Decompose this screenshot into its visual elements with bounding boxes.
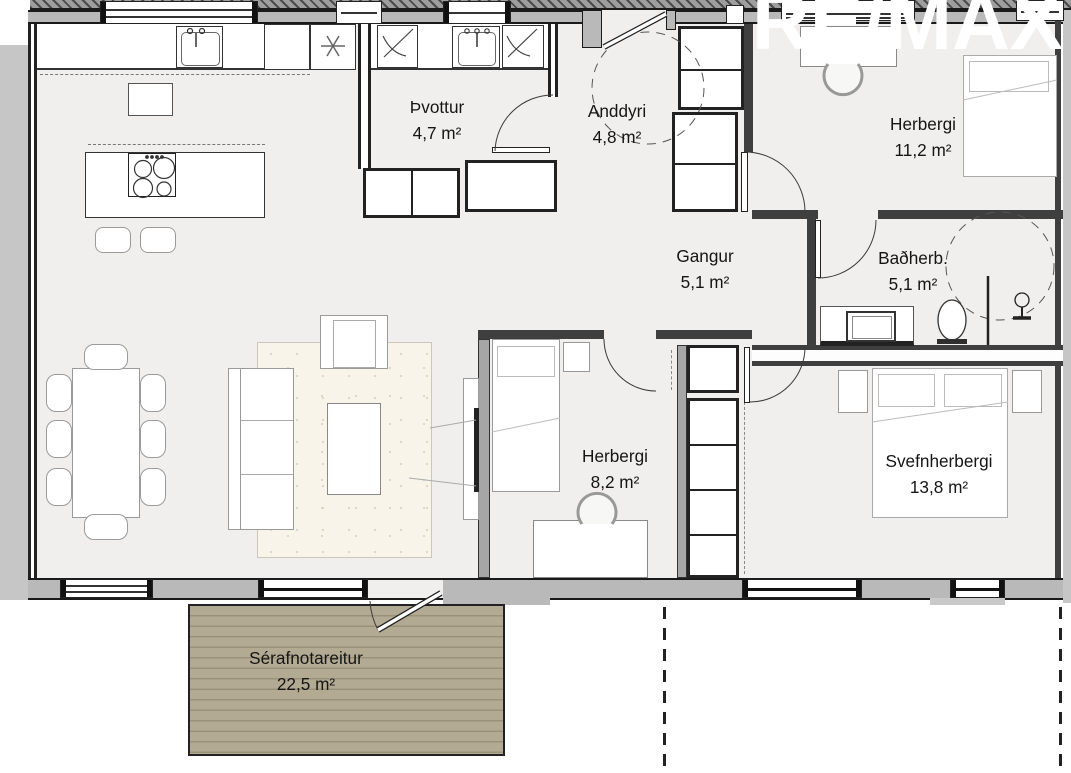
dining-chair: [46, 420, 72, 458]
left-exterior-wall: [28, 24, 37, 580]
room-label-master: Svefnherbergi 13,8 m²: [885, 448, 992, 500]
cabinet-divider: [690, 489, 736, 491]
living-window-left: [60, 579, 153, 598]
bedroom2-pillow: [497, 346, 555, 377]
window-post: [101, 2, 106, 23]
laundry-east-wall: [548, 24, 558, 97]
kitchen-cabinet: [264, 24, 310, 70]
window-rail: [105, 16, 253, 18]
sofa-back: [229, 369, 241, 529]
entry-wall-post: [582, 10, 602, 48]
entry-wall-post: [666, 10, 676, 30]
room-area: 5,1 m²: [878, 271, 948, 297]
kitchen-appliance: [128, 83, 173, 116]
cabinet-divider: [411, 171, 413, 215]
vanity-basin: [852, 316, 892, 339]
window-post: [999, 580, 1004, 597]
laundry-cabinet: [363, 168, 460, 218]
sink-basin: [458, 32, 496, 66]
closet-swing-dashes: [744, 402, 745, 574]
room-label-hall: Gangur 5,1 m²: [676, 243, 733, 295]
master-closet-wall: [677, 345, 687, 578]
left-exterior-band: [0, 45, 28, 600]
window-post: [951, 580, 956, 597]
room-area: 5,1 m²: [676, 269, 733, 295]
entry-closet: [672, 112, 738, 212]
hall-south-wall: [656, 330, 752, 339]
room-area: 4,7 m²: [410, 120, 464, 146]
room-area: 22,5 m²: [249, 671, 363, 697]
sofa-cushion-line: [241, 420, 293, 421]
dining-chair: [140, 374, 166, 412]
room-area: 8,2 m²: [582, 469, 648, 495]
window-post: [259, 580, 264, 597]
bottom-sill-segment: [930, 598, 1005, 605]
closet-swing-dashes: [671, 350, 672, 390]
room-name: Sérafnotareitur: [249, 645, 363, 671]
hall-closet-box: [687, 345, 739, 393]
right-exterior-band: [1063, 10, 1071, 603]
bedroom2-north-wall: [478, 330, 604, 339]
room-label-bedroom2: Herbergi 8,2 m²: [582, 443, 648, 495]
armchair-seat: [333, 320, 376, 368]
bedroom1-door-leaf: [741, 152, 748, 212]
window-post: [505, 2, 510, 23]
room-label-bathroom: Baðherb. 5,1 m²: [878, 245, 948, 297]
bar-stool: [95, 227, 131, 253]
room-name: Þvottur: [410, 94, 464, 120]
deck-door-opening: [368, 580, 443, 598]
dining-chair: [140, 420, 166, 458]
room-label-bedroom1: Herbergi 11,2 m²: [890, 111, 956, 163]
dining-chair: [84, 514, 128, 540]
window-glass-line: [956, 588, 999, 591]
window-post: [444, 2, 449, 23]
lot-boundary-dashed: [1059, 607, 1062, 773]
lot-boundary-dashed: [663, 607, 666, 773]
cabinet-divider: [690, 534, 736, 536]
window-post: [856, 580, 861, 597]
room-label-laundry: Þvottur 4,7 m²: [410, 94, 464, 146]
room-label-entry: Anddyri 4,8 m²: [588, 98, 646, 150]
window-post: [147, 580, 152, 597]
bedroom1-south-wall-b: [878, 210, 1063, 219]
bedroom2-desk: [533, 520, 648, 578]
entry-door-opening: [600, 10, 670, 24]
laundry-cabinet: [465, 160, 557, 212]
dining-chair: [84, 344, 128, 370]
room-area: 4,8 m²: [588, 124, 646, 150]
bedroom2-window: [742, 579, 862, 598]
floor-plan: Þvottur 4,7 m² Anddyri 4,8 m² Herbergi 1…: [0, 0, 1071, 773]
dining-chair: [46, 468, 72, 506]
armchair: [320, 315, 388, 369]
dining-table: [72, 368, 140, 518]
window-rail: [341, 12, 377, 14]
window-rail: [105, 9, 253, 11]
room-area: 11,2 m²: [890, 137, 956, 163]
entry-closet: [678, 26, 744, 110]
master-door-leaf: [744, 347, 750, 403]
bathroom-door-leaf: [815, 220, 821, 278]
dining-chair: [140, 468, 166, 506]
living-sliding-window: [258, 579, 368, 598]
bedroom2-side-table: [563, 342, 590, 372]
freezer-cabinet: [310, 24, 356, 70]
counter-overhang-dashes: [40, 74, 310, 75]
master-window: [950, 579, 1005, 598]
laundry-west-wall: [358, 24, 371, 169]
room-name: Baðherb.: [878, 245, 948, 271]
washer: [377, 25, 418, 68]
room-name: Anddyri: [588, 98, 646, 124]
tv-screen: [474, 408, 479, 492]
laundry-sink: [452, 26, 500, 68]
entry-sidelight-window: [726, 5, 744, 24]
living-bedroom2-wall: [478, 339, 490, 578]
kitchen-window: [100, 1, 258, 24]
nightstand: [838, 370, 868, 413]
bar-stool: [140, 227, 176, 253]
bottom-exterior-wall: [28, 578, 1063, 600]
cabinet-divider: [675, 163, 735, 165]
coffee-table: [327, 403, 381, 495]
laundry-door-leaf: [492, 147, 550, 153]
window-rail: [65, 585, 148, 587]
dining-chair: [46, 374, 72, 412]
window-rail: [65, 591, 148, 593]
kitchen-sink: [176, 26, 223, 68]
window-post: [362, 580, 367, 597]
room-name: Svefnherbergi: [885, 448, 992, 474]
master-pillow: [944, 374, 1002, 407]
dryer: [502, 25, 544, 68]
room-area: 13,8 m²: [885, 474, 992, 500]
window-post: [61, 580, 66, 597]
cabinet-divider: [681, 69, 741, 71]
cabinet-divider: [690, 444, 736, 446]
master-pillow: [878, 374, 935, 407]
stove: [128, 153, 176, 197]
master-closet: [687, 398, 739, 578]
window-rail: [448, 12, 506, 14]
window-post: [743, 580, 748, 597]
small-window: [336, 1, 382, 24]
bedroom1-south-wall-a: [752, 210, 818, 219]
room-name: Gangur: [676, 243, 733, 269]
room-name: Herbergi: [890, 111, 956, 137]
sofa: [228, 368, 294, 530]
room-label-deck: Sérafnotareitur 22,5 m²: [249, 645, 363, 697]
window-glass-line: [264, 588, 362, 591]
remax-watermark: RE/MAX: [752, 0, 1063, 68]
window-post: [252, 2, 257, 23]
bathroom-master-wall: [752, 345, 1063, 366]
laundry-window: [443, 1, 511, 24]
vanity-sink: [846, 311, 896, 342]
island-overhang-dashes: [88, 144, 265, 145]
nightstand: [1012, 370, 1042, 413]
window-glass-line: [748, 588, 856, 591]
sink-basin: [181, 32, 220, 66]
room-name: Herbergi: [582, 443, 648, 469]
sofa-cushion-line: [241, 474, 293, 475]
